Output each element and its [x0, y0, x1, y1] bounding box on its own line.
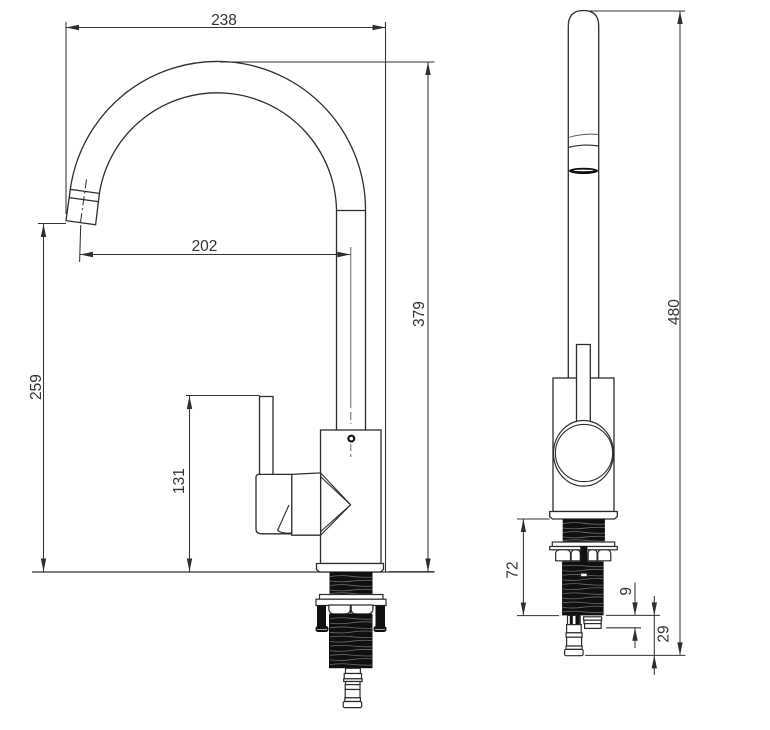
svg-text:379: 379 — [411, 301, 428, 327]
svg-text:9: 9 — [618, 587, 635, 596]
svg-text:72: 72 — [505, 561, 522, 578]
svg-text:29: 29 — [656, 625, 673, 642]
svg-text:131: 131 — [171, 468, 188, 494]
svg-text:480: 480 — [666, 299, 683, 325]
svg-text:259: 259 — [28, 374, 45, 400]
svg-text:202: 202 — [192, 238, 218, 255]
svg-text:238: 238 — [211, 12, 237, 29]
